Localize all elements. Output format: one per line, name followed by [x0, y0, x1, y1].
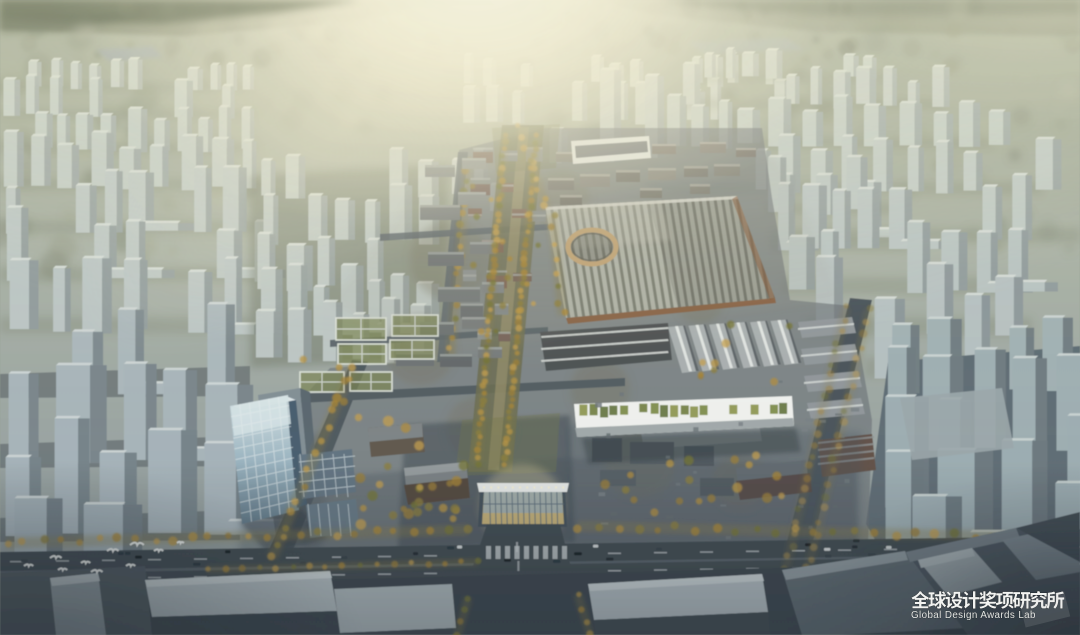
svg-text:Global Design Awards Lab: Global Design Awards Lab [911, 610, 1036, 621]
